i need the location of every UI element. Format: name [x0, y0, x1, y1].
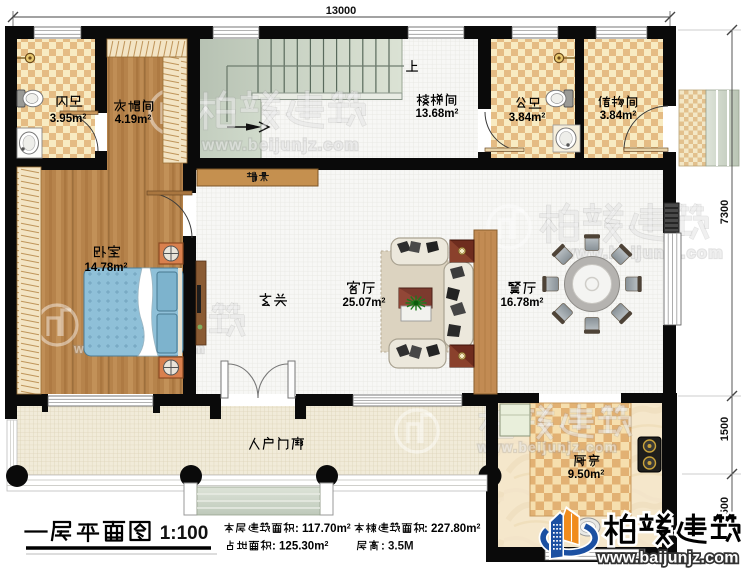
svg-text:: 117.70m2: : 117.70m2: [295, 523, 351, 535]
svg-text:: 227.80m2: : 227.80m2: [424, 523, 480, 535]
svg-text:16.78m2: 16.78m2: [501, 297, 544, 309]
svg-text:4.19m2: 4.19m2: [115, 114, 152, 126]
svg-text:7300: 7300: [719, 200, 731, 224]
svg-text:3.84m2: 3.84m2: [509, 112, 546, 124]
svg-text:3.95m2: 3.95m2: [50, 113, 87, 125]
svg-text:9.50m2: 9.50m2: [568, 469, 605, 481]
svg-text:13000: 13000: [326, 5, 357, 17]
svg-text:: 125.30m2: : 125.30m2: [272, 540, 328, 552]
svg-text:1:100: 1:100: [160, 523, 209, 544]
svg-text:www.baijunjz.com: www.baijunjz.com: [596, 550, 738, 567]
svg-text:: 3.5M: : 3.5M: [381, 541, 414, 553]
svg-text:25.07m2: 25.07m2: [343, 297, 386, 309]
svg-text:1500: 1500: [719, 417, 731, 441]
svg-text:13.68m2: 13.68m2: [416, 108, 459, 120]
svg-text:3.84m2: 3.84m2: [600, 110, 637, 122]
svg-text:14.78m2: 14.78m2: [85, 262, 128, 274]
svg-text:www.beijunjz.com: www.beijunjz.com: [201, 137, 360, 154]
